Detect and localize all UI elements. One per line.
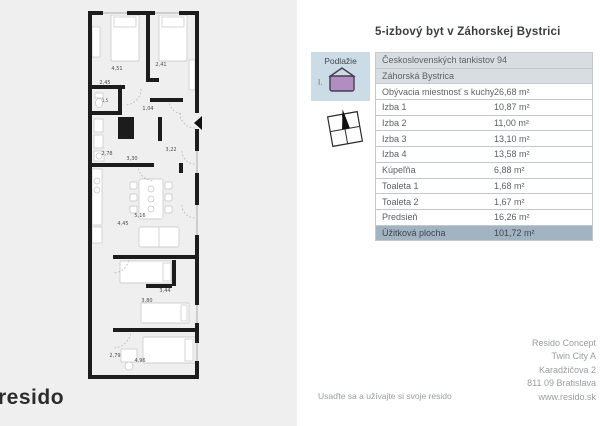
room-area: 13,10 m² bbox=[494, 134, 592, 144]
room-label: Toaleta 1 bbox=[382, 181, 494, 191]
table-row-total: Úžitková plocha 101,72 m² bbox=[376, 226, 592, 242]
room-area: 13,58 m² bbox=[494, 149, 592, 159]
area-table: Československých tankistov 94 Záhorská B… bbox=[375, 52, 593, 241]
room-label: Kúpeľňa bbox=[382, 165, 494, 175]
compass-icon bbox=[321, 103, 369, 151]
contact-block: Resido Concept Twin City A Karadžičova 2… bbox=[527, 337, 596, 404]
total-area: 101,72 m² bbox=[494, 228, 592, 238]
page: 4,51 2,45 2,41 1,5 1,04 2,78 3,30 3,22 5… bbox=[0, 0, 600, 426]
dim-label: 2,78 bbox=[101, 151, 112, 157]
room-label: Toaleta 2 bbox=[382, 197, 494, 207]
dim-label: 3,44 bbox=[159, 288, 170, 294]
room-area: 26,68 m² bbox=[494, 87, 592, 97]
page-title: 5-izbový byt v Záhorskej Bystrici bbox=[375, 26, 597, 38]
table-row: Izba 3 13,10 m² bbox=[376, 131, 592, 147]
contact-line: Resido Concept bbox=[527, 337, 596, 350]
contact-line: Karadžičova 2 bbox=[527, 364, 596, 377]
room-area: 1,67 m² bbox=[494, 197, 592, 207]
floorplan-panel: 4,51 2,45 2,41 1,5 1,04 2,78 3,30 3,22 5… bbox=[0, 0, 297, 426]
floorplan-drawing: 4,51 2,45 2,41 1,5 1,04 2,78 3,30 3,22 5… bbox=[75, 5, 205, 383]
floor-selector[interactable]: Podlažie I. bbox=[311, 52, 370, 101]
room-label: Izba 1 bbox=[382, 102, 494, 112]
room-label: Izba 2 bbox=[382, 118, 494, 128]
furniture-layer bbox=[92, 15, 195, 370]
dim-label: 5,16 bbox=[134, 213, 145, 219]
table-row: Toaleta 1 1,68 m² bbox=[376, 179, 592, 195]
room-label: Predsieň bbox=[382, 212, 494, 222]
room-area: 11,00 m² bbox=[494, 118, 592, 128]
slogan-text: Usaďte sa a užívajte si svoje resido bbox=[318, 391, 452, 401]
dim-label: 4,51 bbox=[111, 66, 122, 72]
dim-label: 4,45 bbox=[117, 221, 128, 227]
table-row: Izba 4 13,58 m² bbox=[376, 147, 592, 163]
dim-label: 3,22 bbox=[165, 147, 176, 153]
dim-label: 1,04 bbox=[142, 106, 153, 112]
resido-logo: resido bbox=[0, 386, 64, 410]
district-label: Záhorská Bystrica bbox=[382, 71, 592, 81]
table-row-district: Záhorská Bystrica bbox=[376, 69, 592, 85]
floor-selector-label: Podlažie bbox=[311, 56, 370, 66]
house-icon bbox=[325, 66, 359, 94]
room-area: 6,88 m² bbox=[494, 165, 592, 175]
street-label: Československých tankistov 94 bbox=[382, 55, 592, 65]
dim-label: 4,96 bbox=[134, 358, 145, 364]
table-row: Izba 1 10,87 m² bbox=[376, 100, 592, 116]
room-area: 1,68 m² bbox=[494, 181, 592, 191]
contact-line: 811 09 Bratislava bbox=[527, 377, 596, 390]
table-row-street: Československých tankistov 94 bbox=[376, 53, 592, 69]
table-row: Obývacia miestnosť s kuchyňou 26,68 m² bbox=[376, 84, 592, 100]
contact-line: Twin City A bbox=[527, 350, 596, 363]
room-label: Obývacia miestnosť s kuchyňou bbox=[382, 87, 494, 97]
dim-label: 3,80 bbox=[141, 298, 152, 304]
table-row: Izba 2 11,00 m² bbox=[376, 116, 592, 132]
room-area: 10,87 m² bbox=[494, 102, 592, 112]
website-link[interactable]: www.resido.sk bbox=[527, 391, 596, 404]
dim-label: 1,5 bbox=[102, 98, 109, 103]
table-row: Toaleta 2 1,67 m² bbox=[376, 194, 592, 210]
dim-label: 3,30 bbox=[126, 156, 137, 162]
room-label: Izba 3 bbox=[382, 134, 494, 144]
dim-label: 2,45 bbox=[99, 80, 110, 86]
table-row: Predsieň 16,26 m² bbox=[376, 210, 592, 226]
dim-label: 2,41 bbox=[155, 62, 166, 68]
floor-level-label: I. bbox=[318, 78, 322, 87]
total-label: Úžitková plocha bbox=[382, 228, 494, 238]
dim-label: 2,79 bbox=[109, 353, 120, 359]
room-label: Izba 4 bbox=[382, 149, 494, 159]
room-area: 16,26 m² bbox=[494, 212, 592, 222]
table-row: Kúpeľňa 6,88 m² bbox=[376, 163, 592, 179]
